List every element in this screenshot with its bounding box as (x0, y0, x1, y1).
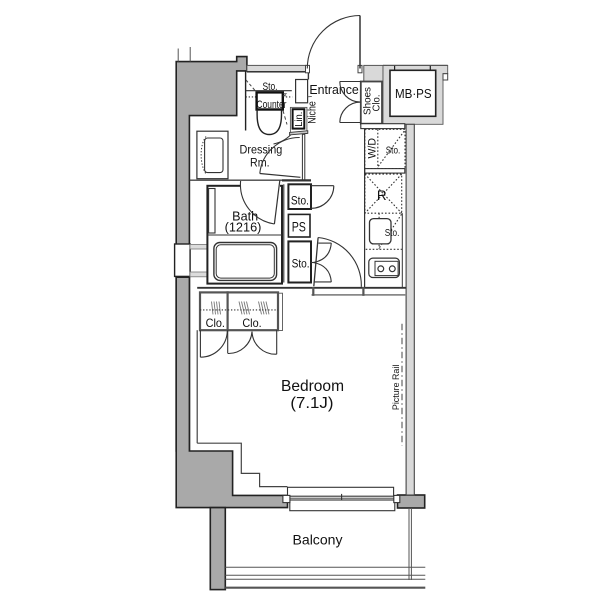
svg-text:Picture Rail: Picture Rail (391, 365, 401, 410)
svg-text:Niche: Niche (307, 101, 319, 124)
svg-text:Clo.: Clo. (242, 316, 261, 330)
svg-text:Sto.: Sto. (291, 195, 309, 207)
svg-text:MB·PS: MB·PS (395, 87, 432, 101)
svg-text:Bedroom: Bedroom (281, 378, 344, 395)
svg-text:Counter: Counter (257, 99, 287, 111)
svg-text:(1216): (1216) (225, 220, 262, 234)
svg-text:Dressing: Dressing (240, 142, 283, 156)
svg-text:Clo.: Clo. (370, 95, 382, 112)
svg-text:Balcony: Balcony (293, 532, 343, 548)
svg-text:Entrance: Entrance (309, 82, 358, 97)
svg-text:Sto.: Sto. (292, 259, 310, 271)
svg-text:PS: PS (292, 220, 306, 235)
svg-text:Clo.: Clo. (206, 316, 225, 330)
svg-text:Sto.: Sto. (385, 227, 400, 239)
svg-text:Lin.: Lin. (294, 112, 305, 127)
svg-text:W/D: W/D (366, 138, 378, 159)
svg-text:Rm.: Rm. (250, 156, 270, 170)
svg-text:Sto.: Sto. (386, 145, 401, 157)
svg-text:R: R (377, 188, 387, 203)
svg-text:(7.1J): (7.1J) (290, 395, 333, 412)
